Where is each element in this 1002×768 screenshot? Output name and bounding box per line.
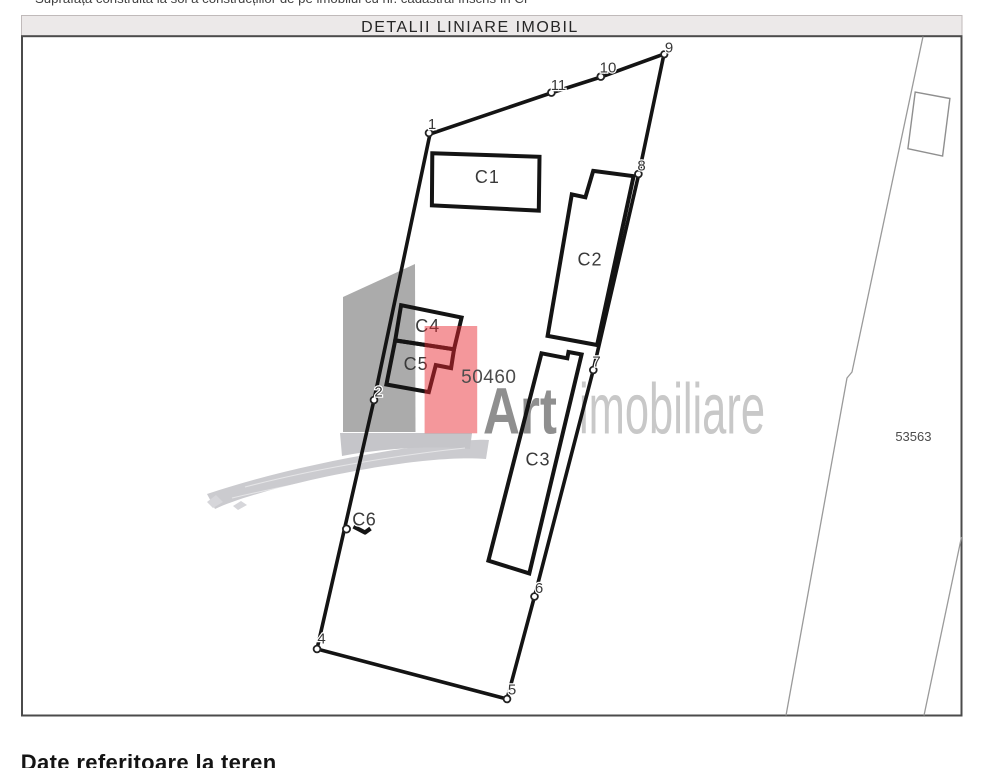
svg-text:C1: C1 [475,167,500,187]
svg-text:Date referitoare la teren: Date referitoare la teren [21,750,277,768]
svg-text:9: 9 [665,40,673,57]
svg-text:Suprafața construită la sol a: Suprafața construită la sol a construcți… [35,0,532,6]
svg-text:10: 10 [600,60,617,77]
svg-text:imobiliare: imobiliare [579,371,765,450]
svg-text:7: 7 [592,354,600,371]
svg-text:C2: C2 [577,250,602,270]
svg-text:6: 6 [535,580,543,597]
svg-text:C6: C6 [352,510,376,530]
svg-text:DETALII LINIARE IMOBIL: DETALII LINIARE IMOBIL [361,19,579,36]
svg-text:53563: 53563 [895,429,931,444]
svg-text:4: 4 [317,631,325,648]
svg-text:C3: C3 [525,450,550,470]
svg-text:50460: 50460 [461,367,516,388]
svg-text:8: 8 [637,158,645,175]
svg-text:11: 11 [551,77,567,94]
svg-text:1: 1 [428,116,436,133]
svg-text:2: 2 [374,384,382,401]
svg-text:5: 5 [508,682,516,699]
